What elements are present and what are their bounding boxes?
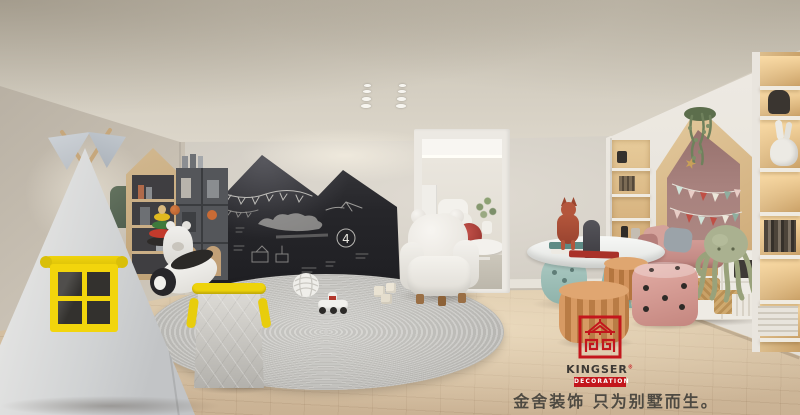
bookcase-item bbox=[140, 207, 150, 225]
dice-dot bbox=[662, 295, 668, 301]
octopus-plush bbox=[694, 220, 758, 304]
armchair-foot bbox=[458, 293, 466, 303]
toy-car-wheel bbox=[330, 307, 337, 314]
brand-subtitle-strip: DECORATION bbox=[574, 377, 626, 387]
ceiling-spotlight bbox=[361, 104, 371, 108]
shelf-board bbox=[760, 300, 800, 304]
shelf-item-white-books bbox=[758, 306, 798, 336]
shelf-top-books bbox=[198, 156, 203, 168]
teepee-shadow bbox=[0, 396, 220, 415]
fox-figurine-leg bbox=[561, 240, 565, 250]
shelf-top-books bbox=[190, 154, 196, 168]
shelf-item-books bbox=[619, 176, 635, 191]
toy-car-wheel bbox=[319, 307, 326, 314]
registered-icon: ® bbox=[628, 364, 634, 370]
shelf-item-camera bbox=[617, 151, 627, 163]
shelf-item-books bbox=[764, 220, 796, 252]
shelf-divider-h bbox=[176, 204, 228, 206]
shelf-toy-book bbox=[207, 180, 219, 198]
dice-dot bbox=[681, 283, 687, 289]
shelf-board bbox=[612, 168, 650, 171]
wooden-block bbox=[381, 294, 392, 304]
rabbit-sculpture-body bbox=[770, 138, 798, 166]
brand-slogan: 金舍装饰 只为别墅而生。 bbox=[504, 388, 728, 408]
ring-stack-knob bbox=[158, 205, 166, 214]
brand-text: KINGSER bbox=[566, 363, 628, 376]
armchair-seat bbox=[407, 256, 471, 296]
bear-plush-muzzle bbox=[172, 242, 184, 251]
ceiling-spotlight bbox=[363, 90, 371, 93]
basket-rim bbox=[192, 283, 266, 294]
fabric-basket bbox=[194, 288, 264, 388]
shelf-toy-ball bbox=[207, 210, 217, 220]
shelf-board bbox=[612, 218, 650, 221]
teepee-window-mullion-h bbox=[58, 296, 110, 301]
bookcase-shelf bbox=[132, 199, 174, 202]
dice-top-sheen bbox=[634, 262, 696, 278]
brand-wordmark: KINGSER® bbox=[556, 363, 644, 376]
armchair-foot bbox=[416, 294, 424, 304]
toy-car-wheel bbox=[340, 307, 347, 314]
shelf-board bbox=[760, 212, 800, 216]
table-leg-dot bbox=[562, 278, 567, 283]
shelf-toy-book bbox=[181, 178, 191, 198]
bookcase-item bbox=[146, 187, 152, 199]
nook-pillow-gray bbox=[663, 227, 693, 254]
pleated-stool-front-top bbox=[559, 281, 629, 300]
playroom-scene: 4 bbox=[0, 0, 800, 415]
shelf-glow bbox=[760, 172, 800, 212]
shelf-item-figurine bbox=[768, 90, 790, 114]
ceiling-spotlight bbox=[362, 97, 371, 101]
shelf-board bbox=[760, 338, 800, 342]
armchair-foot bbox=[438, 296, 446, 306]
shelf-board bbox=[760, 255, 800, 259]
ceiling-spotlight bbox=[364, 84, 371, 87]
orange-ball-toy bbox=[170, 205, 180, 215]
dice-dot-top bbox=[649, 268, 654, 272]
ring-stack-yellow bbox=[154, 213, 170, 221]
shelf-glow bbox=[760, 259, 800, 300]
ceiling-spotlight bbox=[397, 97, 406, 101]
ceiling-spotlight bbox=[396, 104, 406, 108]
fox-figurine-body bbox=[557, 214, 579, 244]
table-leg-dot bbox=[570, 268, 574, 272]
chalk-number: 4 bbox=[342, 232, 350, 246]
inner-vase bbox=[482, 221, 492, 234]
shelf-glow bbox=[760, 56, 800, 86]
ceiling-spotlight bbox=[398, 90, 406, 93]
shelf-board bbox=[760, 168, 800, 172]
dice-dot bbox=[643, 285, 649, 291]
teepee-window-frame bbox=[50, 264, 118, 332]
watermark: KINGSER® DECORATION 金舍装饰 只为别墅而生。 bbox=[496, 306, 736, 410]
shelf-top-books bbox=[182, 156, 188, 168]
ceiling-spotlight bbox=[399, 84, 406, 87]
wooden-block bbox=[386, 283, 396, 293]
penguin-plush-cheek bbox=[154, 276, 166, 290]
inner-ceiling bbox=[422, 139, 502, 156]
shelf-board bbox=[612, 194, 650, 197]
yarn-ball-toy bbox=[292, 272, 320, 298]
chalk-cloud bbox=[258, 213, 322, 231]
table-leg-dot bbox=[552, 270, 557, 275]
house-logo-icon bbox=[577, 314, 623, 360]
dice-dot-top bbox=[675, 266, 680, 270]
fox-figurine-leg bbox=[571, 240, 575, 250]
